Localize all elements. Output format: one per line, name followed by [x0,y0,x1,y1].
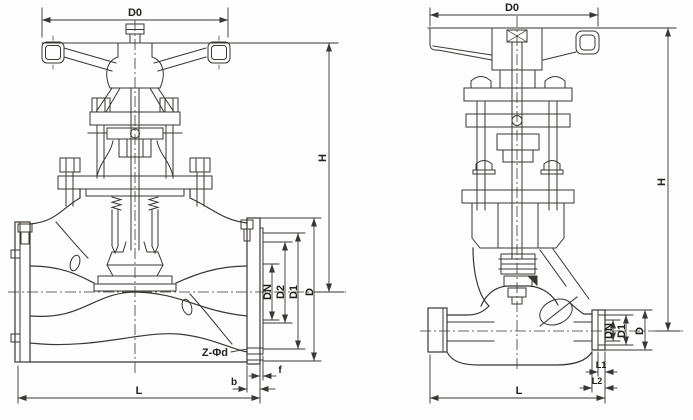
left-dim-label-b: b [231,377,237,388]
left-dim-label-d1: D1 [288,285,300,299]
right-dim-label-l1: L1 [596,360,607,370]
bellows-seal [499,254,537,274]
left-dim-label-f: f [278,365,282,376]
left-dim-label-bolt-circle: Z-Φd [202,347,228,359]
left-dim-label-d2: D2 [275,285,287,299]
left-dim-label-h: H [317,154,329,162]
spring-right [149,197,158,210]
right-valve-body [428,248,605,365]
drawing-svg: D0 H DN D2 D1 D Z-Φd b f L [0,0,693,420]
left-valve-view: D0 H DN D2 D1 D Z-Φd b f L [8,7,346,403]
right-dim-label-d1: D1 [616,324,628,338]
right-dim-label-h: H [656,178,668,186]
right-dim-label-dn: DN [603,323,615,339]
spring-left [112,197,121,210]
right-dim-label-d0: D0 [505,2,519,14]
bolt-hole-hatch [247,348,263,360]
left-valve-dimensions: D0 H DN D2 D1 D Z-Φd b f L [18,7,344,403]
globe-valve-technical-drawing: D0 H DN D2 D1 D Z-Φd b f L [0,0,693,420]
left-dim-label-d: D [304,288,316,296]
left-valve-centerlines [8,20,346,374]
right-valve-handwheel [428,28,676,70]
right-dim-label-d: D [634,327,646,335]
left-valve-handwheel [42,24,338,88]
left-dim-label-d0: D0 [128,7,142,19]
right-valve-centerlines [420,16,684,372]
right-valve-bonnet-assembly [462,70,589,304]
left-dim-label-dn: DN [262,284,274,300]
right-valve-view: D0 H DN D1 D L1 L2 L [420,2,684,403]
right-dim-label-l: L [516,385,523,397]
left-dim-label-l: L [136,385,143,397]
right-dim-label-l2: L2 [592,376,603,386]
